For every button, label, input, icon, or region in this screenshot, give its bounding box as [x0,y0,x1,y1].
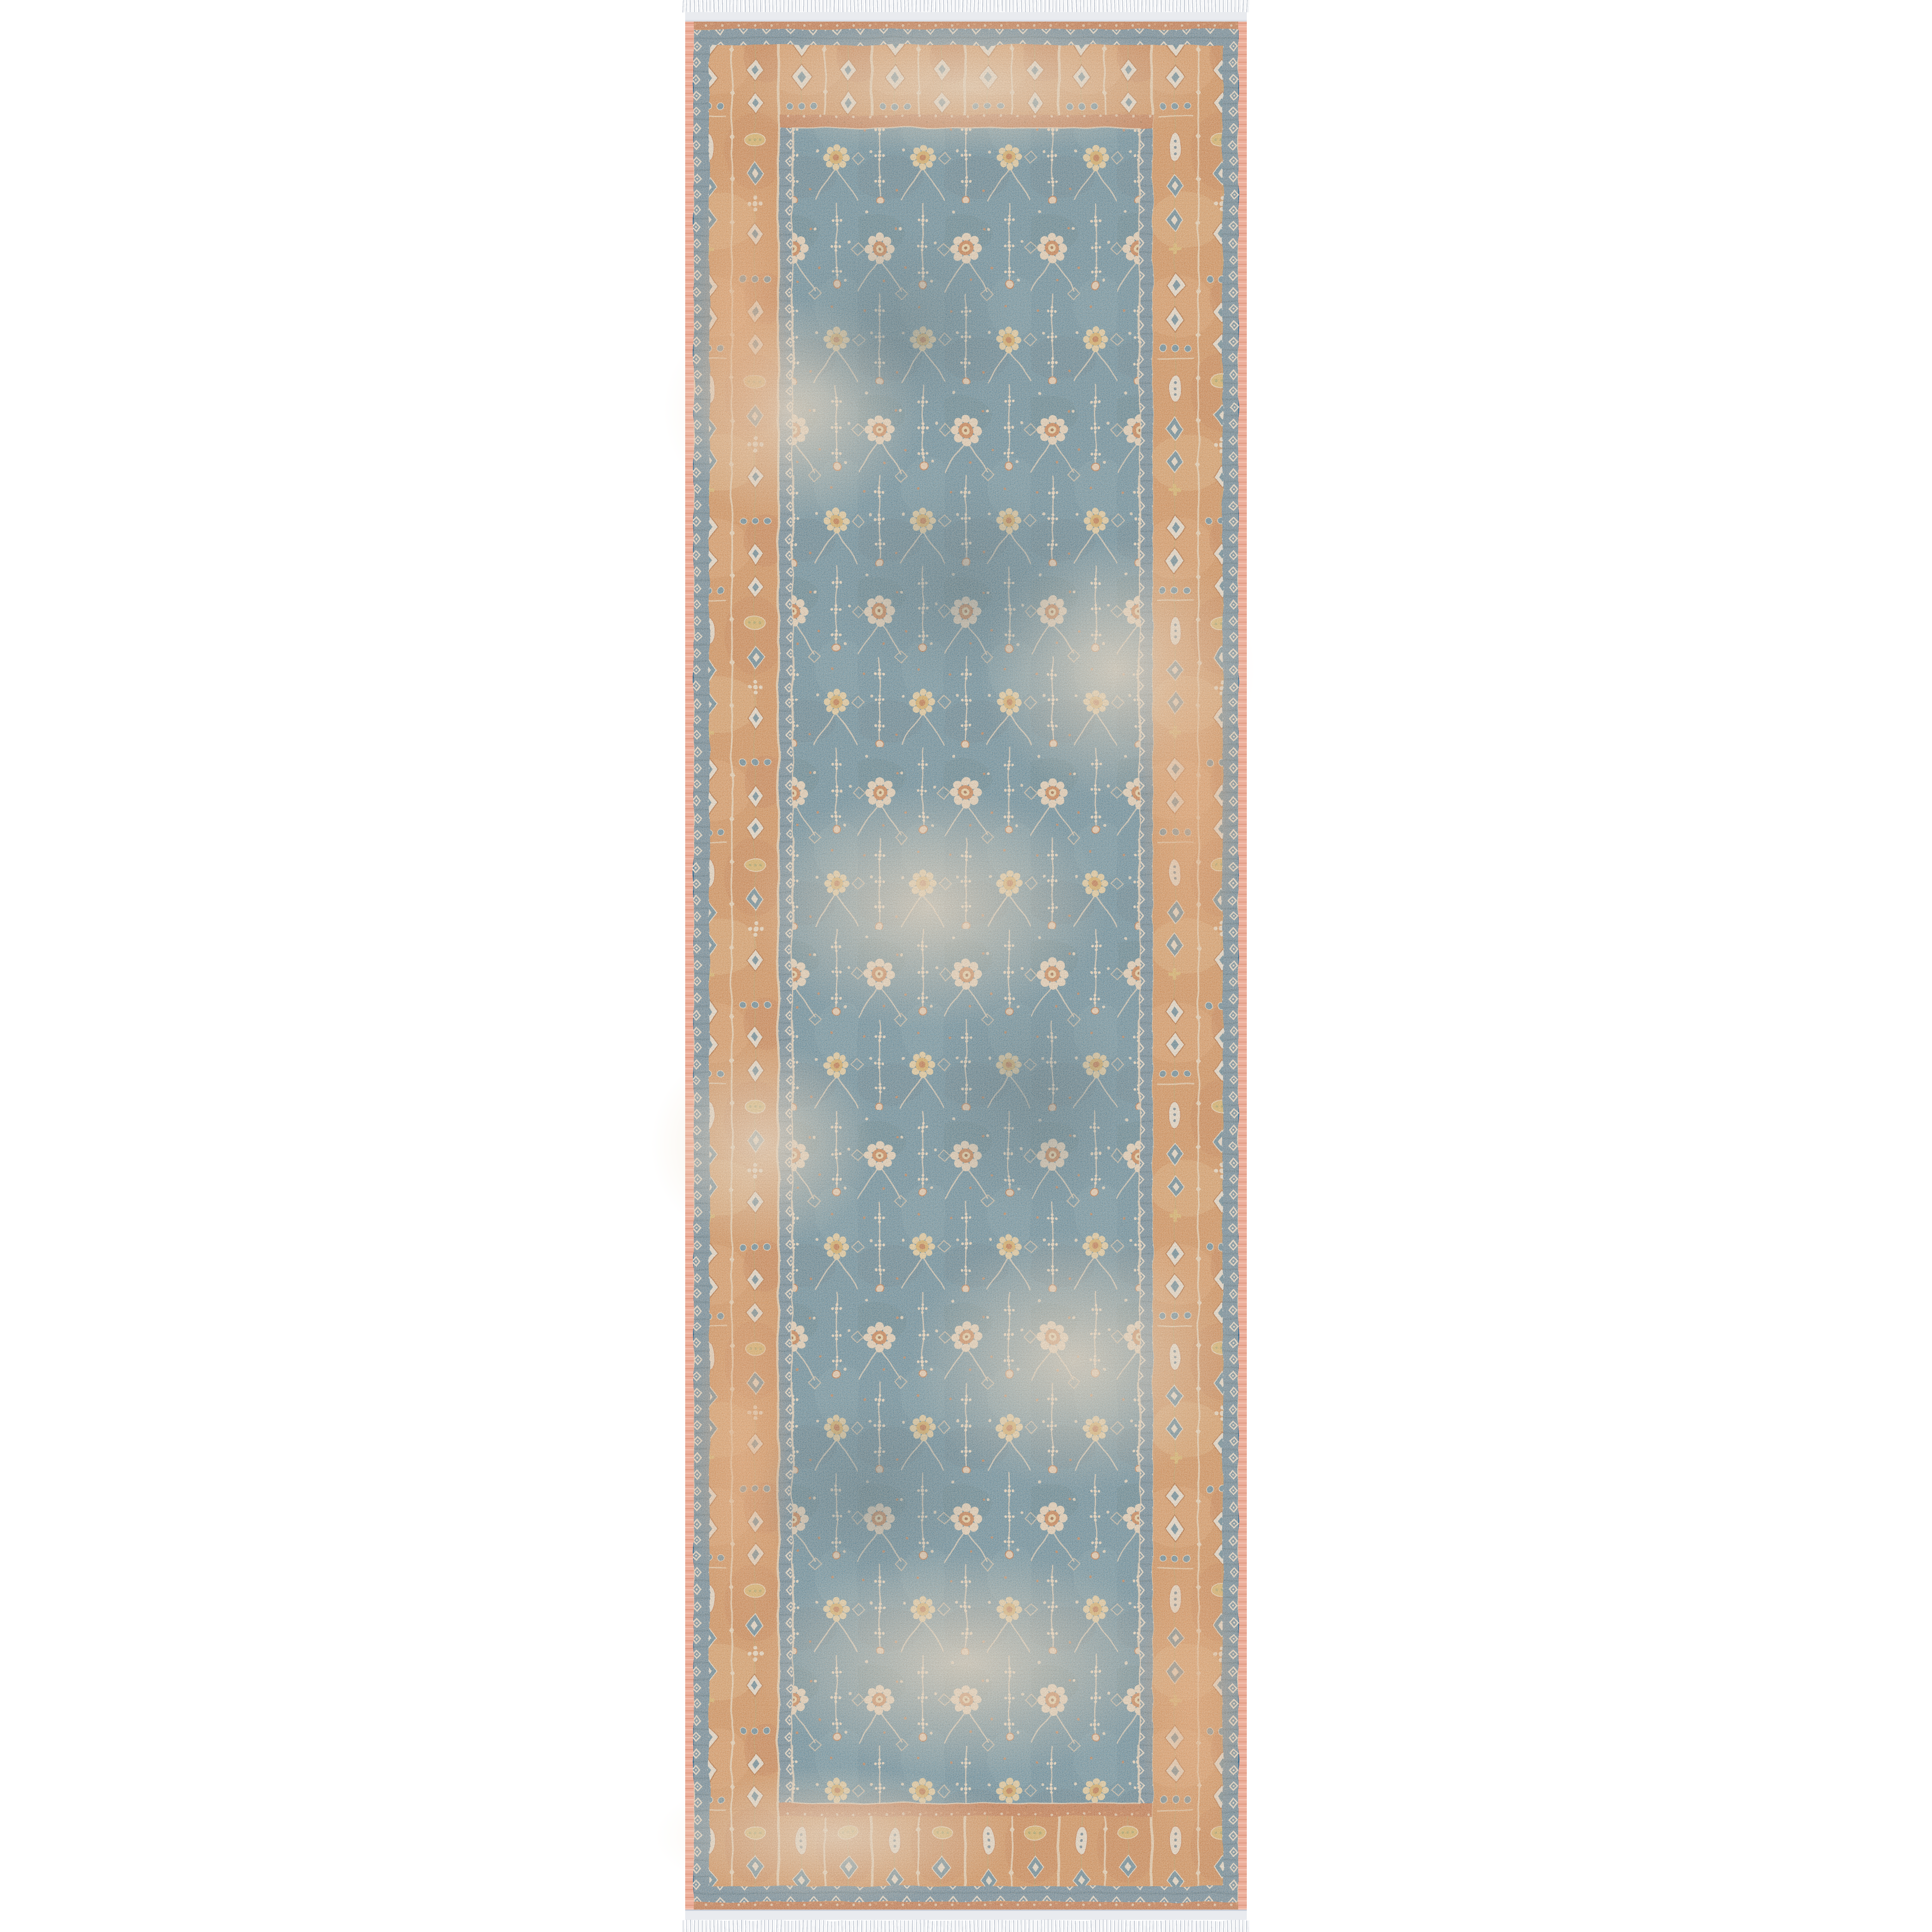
product-photo [0,0,1932,1932]
fringe-top [683,0,1249,13]
kilim-shadow-bottom [685,1910,1247,1911]
rug-photo-canvas [0,0,1932,1932]
grain-dark [694,22,1238,1910]
rug-body [651,17,1255,1910]
selvedge-right [1238,22,1247,1910]
kilim-band-bottom [685,1910,1247,1920]
runner-rug [651,0,1255,1932]
fringe-bottom [683,1920,1249,1932]
